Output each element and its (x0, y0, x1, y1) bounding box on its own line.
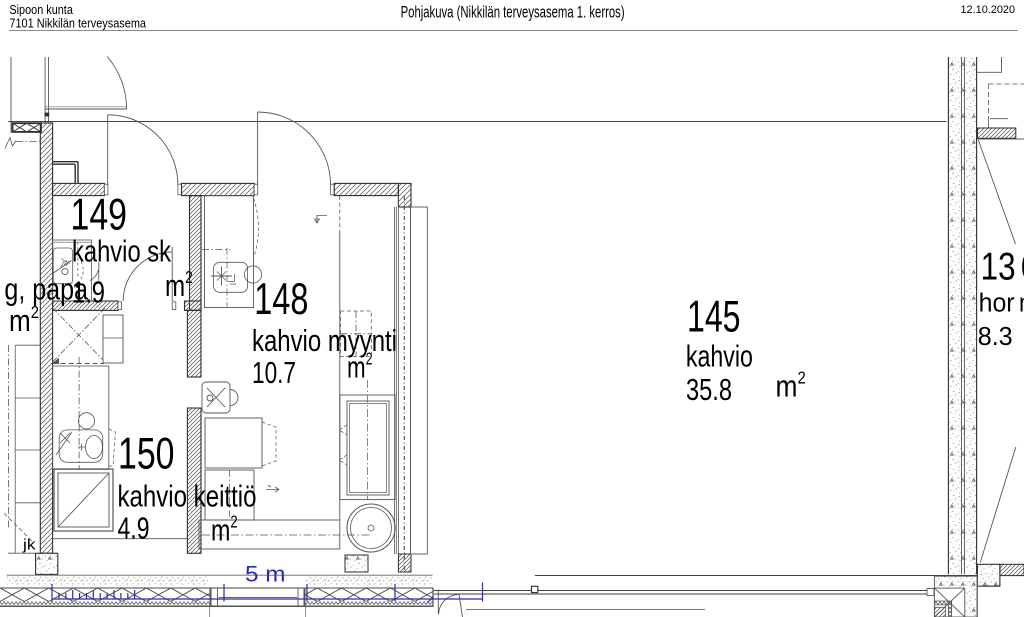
svg-text:mi: mi (1019, 290, 1024, 318)
svg-text:kahvio myynti: kahvio myynti (252, 323, 397, 358)
svg-text:148: 148 (254, 275, 308, 324)
svg-text:7101 Nikkilän terveysasema: 7101 Nikkilän terveysasema (9, 17, 146, 31)
svg-text:6: 6 (1021, 245, 1024, 288)
svg-text:Pohjakuva (Nikkilän terveysas: Pohjakuva (Nikkilän terveysasema 1. kerr… (401, 3, 625, 21)
svg-text:145: 145 (687, 293, 741, 342)
svg-text:kahvio keittiö: kahvio keittiö (118, 479, 257, 514)
svg-text:hor: hor (979, 290, 1015, 318)
svg-text:12.10.2020: 12.10.2020 (961, 4, 1016, 16)
svg-text:Sipoon kunta: Sipoon kunta (9, 3, 73, 17)
svg-text:150: 150 (118, 430, 175, 479)
svg-text:35.8: 35.8 (686, 372, 732, 407)
svg-text:kahvio sk: kahvio sk (72, 234, 171, 269)
svg-text:4.9: 4.9 (118, 511, 150, 546)
svg-text:kahvio: kahvio (686, 339, 753, 374)
svg-text:jk: jk (22, 538, 37, 554)
svg-text:10.7: 10.7 (252, 355, 296, 390)
svg-text:g, papa: g, papa (4, 272, 88, 307)
svg-text:13: 13 (981, 245, 1016, 288)
svg-text:8.3: 8.3 (978, 323, 1013, 351)
svg-text:5 m: 5 m (245, 561, 286, 586)
svg-text:149: 149 (71, 191, 128, 240)
